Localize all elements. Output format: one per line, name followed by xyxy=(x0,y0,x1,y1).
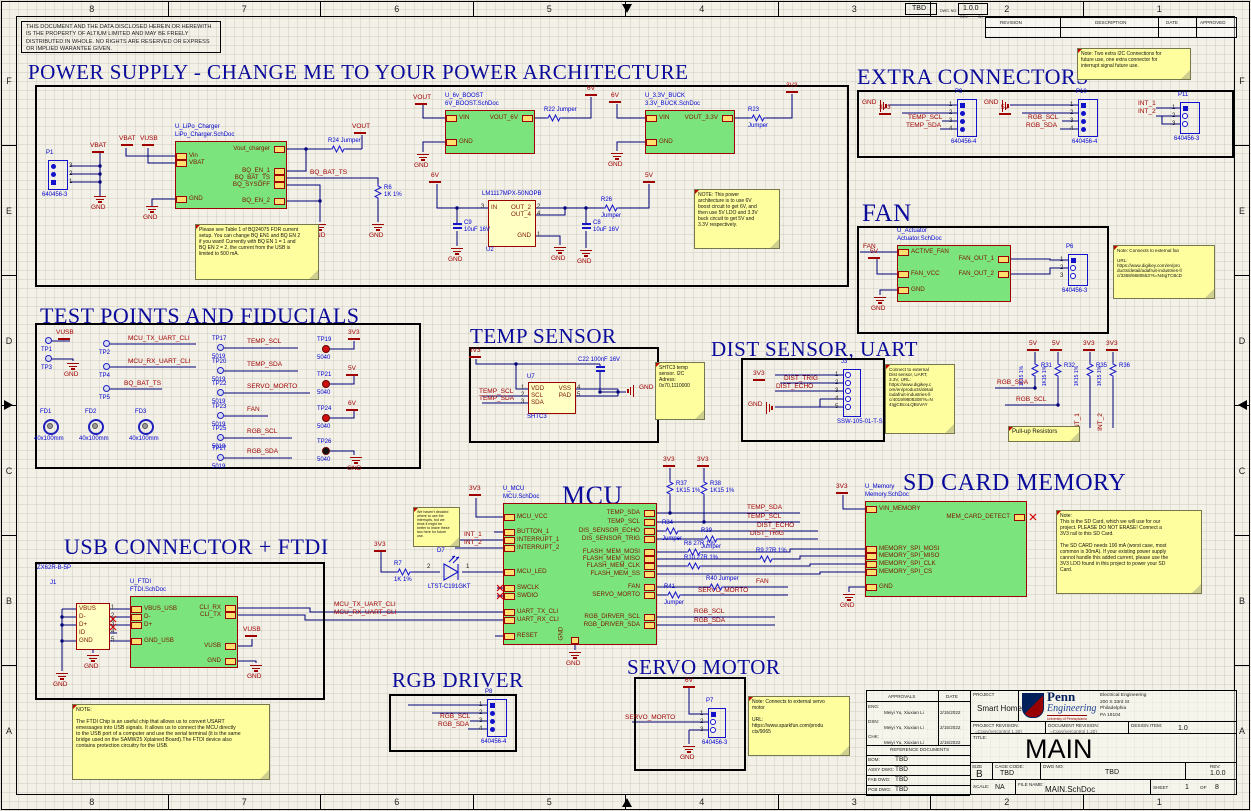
note-sticky[interactable]: NOTE: The FTDI Chip is an useful chip th… xyxy=(72,704,270,780)
gnd-bar xyxy=(451,248,463,249)
gnd-symbol-icon xyxy=(554,247,566,255)
sheet-pin xyxy=(504,609,515,616)
net-label: RGB_SCL xyxy=(1016,397,1046,404)
ref-value: TBD xyxy=(895,756,908,763)
resistor-value: Jumper xyxy=(748,123,768,129)
resistor-R36[interactable] xyxy=(1109,362,1117,378)
net-label: RGB_SCL xyxy=(1028,115,1058,122)
gnd-label: GND xyxy=(871,306,885,313)
connector-pin-number: 4 xyxy=(949,126,952,132)
sheet-number: 1 xyxy=(1185,784,1189,791)
connector-pin-number: 1 xyxy=(835,372,838,378)
note-sticky[interactable]: Note: Connects to external servomotor UR… xyxy=(748,696,850,756)
note-sticky[interactable]: We haven't decidedwhere to use theinterr… xyxy=(413,507,460,547)
gnd-symbol-icon xyxy=(67,363,79,371)
zone-label: 8 xyxy=(16,2,168,16)
sheet-pin xyxy=(446,139,457,146)
section-title: TEMP SENSOR xyxy=(470,324,617,349)
gnd-symbol-icon xyxy=(451,248,463,256)
net-label: TEMP_SCL xyxy=(247,339,281,346)
gnd-bar xyxy=(148,209,156,210)
part-pin-name: PAD xyxy=(531,393,571,400)
gnd-label: GND xyxy=(566,661,580,668)
resistor-label: R39 xyxy=(701,528,712,534)
gnd-bar xyxy=(350,457,362,458)
connector-pin-number: 3 xyxy=(949,118,952,124)
ref-value: TBD xyxy=(895,776,908,783)
resistor-R40[interactable] xyxy=(708,583,724,591)
capacitor-value: 10uF 16V xyxy=(464,227,490,233)
power-rail-bar-icon xyxy=(643,181,655,183)
resistor-R38[interactable] xyxy=(700,480,708,496)
resistor-value: 1K15 1% xyxy=(1020,366,1025,386)
sheet-symbol-filename: 3.3V_BUCK.SchDoc xyxy=(645,101,700,107)
text-label: D7 xyxy=(437,548,445,554)
net-label: RGB_SCL xyxy=(247,429,277,436)
sheet-pin xyxy=(225,605,236,612)
note-line: c/3368/6680553?s=N4IgTCBcD xyxy=(1117,273,1211,278)
gnd-symbol-icon xyxy=(611,153,623,161)
sheet-pin xyxy=(722,115,733,122)
approval-key: ENG: xyxy=(868,704,879,709)
gnd-bar xyxy=(615,158,619,159)
power-rail-bar-icon xyxy=(753,379,765,381)
note-line: cts/9065 xyxy=(752,729,846,735)
sheet-pin-label: FLASH_MEM_CLK xyxy=(560,563,640,570)
power-rail-bar-icon xyxy=(879,113,891,115)
net-label: MCU_TX_UART_CLI xyxy=(128,336,190,343)
note-sticky[interactable]: NOTE: This powerarchitecture is to use 6… xyxy=(694,189,780,249)
fiducial-label: FD1 xyxy=(40,409,51,415)
sheet-pin-label: RESET xyxy=(517,633,538,640)
gnd-bar xyxy=(874,297,886,298)
sheet-pin xyxy=(998,271,1009,278)
power-rail-bar-icon xyxy=(121,144,133,146)
section-title: SD CARD MEMORY xyxy=(903,470,1126,497)
sheet-pin xyxy=(504,537,515,544)
sheet-pin-label: FAN xyxy=(560,584,640,591)
part-pin-number: 1 xyxy=(111,605,114,611)
resistor-R6[interactable] xyxy=(374,184,382,200)
gnd-symbol-icon xyxy=(146,206,158,214)
resistor-R23[interactable] xyxy=(750,114,766,122)
section-box xyxy=(35,323,421,469)
testpoint-TP19[interactable] xyxy=(322,345,330,353)
gnd-label: GND xyxy=(369,233,383,240)
connector-pin-number: 5 xyxy=(835,404,838,410)
testpoint-TP21[interactable] xyxy=(322,380,330,388)
resistor-label: R37 xyxy=(676,481,687,487)
testpoint-package: 5040 xyxy=(317,355,330,361)
schematic-sheet: 87654321 87654321 FEDCBA FEDCBA THIS DOC… xyxy=(0,0,1251,811)
resistor-R37[interactable] xyxy=(666,480,674,496)
testpoint-package: 5040 xyxy=(317,390,330,396)
scale-value: NA xyxy=(995,784,1005,791)
power-rail-label: 3V3 xyxy=(374,542,386,549)
fiducial-dot xyxy=(47,423,53,429)
note-sticky[interactable]: Note:This is the SD Card, which we will … xyxy=(1056,510,1202,594)
sheet-pin-label: FAN_OUT_2 xyxy=(914,271,994,278)
power-rail-bar-icon xyxy=(999,113,1011,115)
testpoint-TP26[interactable] xyxy=(322,447,330,455)
approval-date: 2/15/2022 xyxy=(940,725,960,730)
dwg-no-label-2: DWG NO: xyxy=(1043,764,1064,769)
sheet-pin xyxy=(998,256,1009,263)
capacitor-label: C22 100nF 16V xyxy=(578,357,620,363)
sheet-pin xyxy=(644,556,655,563)
resistor-label: R40 Jumper xyxy=(706,576,739,582)
zone-label: 2 xyxy=(930,795,1083,809)
connector-pin xyxy=(710,727,716,733)
gnd-bar xyxy=(584,255,588,256)
cage-code-label: CAGE CODE: xyxy=(995,764,1024,769)
sheet-pin xyxy=(898,271,909,278)
gnd-label: GND xyxy=(840,603,854,610)
dwg-no-value-2: TBD xyxy=(1105,769,1119,776)
sheet-total: 8 xyxy=(1215,784,1219,791)
gnd-bar xyxy=(69,366,77,367)
part-pin-number: 3 xyxy=(481,204,484,210)
capacitor-C9[interactable] xyxy=(453,223,462,225)
note-sticky[interactable]: Pull-up Resistors xyxy=(1008,426,1080,442)
org-name-2: Engineering xyxy=(1047,703,1096,714)
text-label: ZX62R-B-5P xyxy=(37,565,71,571)
resistor-value: 1K15 1% xyxy=(1098,366,1103,386)
note-sticky[interactable]: Note: Connects to external fan URL:https… xyxy=(1113,245,1215,299)
connector-pin xyxy=(710,719,716,725)
connector-pin-number: 3 xyxy=(1070,118,1073,124)
connector-designator: P9 xyxy=(955,89,962,95)
document-revision-label: DOCUMENT REVISION: xyxy=(1048,723,1099,728)
connector-designator: P11 xyxy=(1178,92,1188,98)
resistor-R9[interactable] xyxy=(758,555,774,563)
power-rail-bar-icon xyxy=(1027,349,1039,351)
sheet-pin xyxy=(866,553,877,560)
sheet-symbol-designator: U_LiPo_Charger xyxy=(175,124,220,130)
power-rail-bar-icon xyxy=(1106,349,1118,351)
connector-pin xyxy=(845,372,851,378)
testpoint-TP22[interactable] xyxy=(217,389,224,396)
capacitor-label: C9 xyxy=(464,220,472,226)
sheet-pin-label: DIS_SENSOR_TRIG xyxy=(560,536,640,543)
gnd-bar xyxy=(419,157,427,158)
connector-part-number: 640456-4 xyxy=(1072,139,1097,145)
testpoint-TP5[interactable] xyxy=(103,385,110,392)
sheet-pin-label: MCU_LED xyxy=(517,569,547,576)
power-rail-label: 3V3 xyxy=(786,83,798,90)
connector-pin-number: 2 xyxy=(1070,110,1073,116)
sheet-pin-label: VOUT_3.3V xyxy=(638,115,718,122)
sheet-pin-label: Vout_charger xyxy=(190,146,270,153)
sheet-pin-label: MEMORY_SPI_CLK xyxy=(879,561,936,568)
gnd-symbol-icon xyxy=(372,224,384,232)
gnd-bar xyxy=(252,668,260,669)
power-rail-bar-icon xyxy=(346,374,358,376)
connector-pin-number: 4 xyxy=(835,396,838,402)
gnd-label: GND xyxy=(347,466,361,473)
power-rail-label: 5V xyxy=(1029,341,1037,348)
resistor-R24[interactable] xyxy=(330,145,346,153)
testpoint-label: TP4 xyxy=(99,373,110,379)
ref-value: TBD xyxy=(895,786,908,793)
power-rail-bar-icon xyxy=(469,356,481,358)
power-rail-label: 3V3 xyxy=(348,330,360,337)
connector-pin xyxy=(960,103,965,108)
resistor-R22[interactable] xyxy=(546,114,562,122)
connector-pin xyxy=(1182,113,1188,119)
gnd-bar xyxy=(421,159,425,160)
power-rail-bar-icon xyxy=(58,338,70,340)
testpoint-label: TP22 xyxy=(212,381,226,387)
power-rail-label: 3V3 xyxy=(663,457,675,464)
approvals-label: APPROVALS xyxy=(888,694,916,699)
connector-pin xyxy=(1071,258,1076,263)
net-label: SERVO_MORTO xyxy=(247,384,297,391)
gnd-bar xyxy=(352,460,360,461)
connector-pin-number: 4 xyxy=(479,726,482,732)
text-label: LTST-C191GKT xyxy=(428,584,471,590)
resistor-R7[interactable] xyxy=(396,568,412,576)
zone-label: 7 xyxy=(168,2,321,16)
power-rail-label: 6V xyxy=(611,93,619,100)
gnd-bar xyxy=(254,670,258,671)
resistor-value: 1K15 1% xyxy=(710,488,734,494)
resistor-R41[interactable] xyxy=(666,591,682,599)
resistor-value: Jumper xyxy=(662,536,682,542)
sheet-pin-label: ACTIVE_FAN xyxy=(911,249,949,256)
resistor-value: Jumper xyxy=(664,600,684,606)
part-pin-number: 5 xyxy=(577,392,580,398)
testpoint-package: 5019 xyxy=(212,464,225,470)
rev-label-2: REV: xyxy=(1210,764,1221,769)
sheet-pin xyxy=(898,249,909,256)
resistor-label: R24 Jumper xyxy=(328,138,361,144)
zone-label: 3 xyxy=(778,795,931,809)
sheet-pin xyxy=(131,622,142,629)
part-pin-number: 1 xyxy=(521,385,524,391)
note-sticky[interactable]: Note: Two extra I2C Connections forfutur… xyxy=(1077,48,1191,80)
gnd-bar xyxy=(613,156,621,157)
text-label: LM1117MPX-50NOPB xyxy=(482,191,541,197)
part-pin-name: D+ xyxy=(79,622,87,629)
org-address-line: Philadelphia xyxy=(1100,706,1126,711)
power-rail-bar-icon xyxy=(663,465,675,467)
connector-part-number: 640456-3 xyxy=(1174,136,1199,142)
zone-label: 5 xyxy=(473,2,626,16)
testpoint-TP3[interactable] xyxy=(45,355,52,362)
resistor-R26[interactable] xyxy=(603,204,619,212)
sheet-pin-label: TEMP_SDA xyxy=(560,510,640,517)
net-label: TEMP_SDA xyxy=(906,123,941,130)
zone-label: E xyxy=(1235,145,1249,275)
net-label: INT_2 xyxy=(464,540,482,547)
zone-label: 8 xyxy=(16,795,168,809)
net-label: RGB_SDA xyxy=(247,449,278,456)
note-sticky[interactable]: SHTC3 tempsensor. I2CAdress:0x70,1110000 xyxy=(655,362,705,420)
sheet-pin xyxy=(274,146,285,153)
testpoint-TP17[interactable] xyxy=(217,344,224,351)
testpoint-TP2[interactable] xyxy=(103,340,110,347)
testpoint-TP4[interactable] xyxy=(103,363,110,370)
connector-pin-number: 3 xyxy=(700,727,703,733)
capacitor-C22[interactable] xyxy=(596,366,605,368)
zone-label: A xyxy=(2,665,16,795)
file-name-value: MAIN.SchDoc xyxy=(1045,785,1095,794)
gnd-bar xyxy=(71,368,75,369)
connector-part-number: 640456-4 xyxy=(951,139,976,145)
note-sticky[interactable]: Please see Table 1 of BQ24075 FOR curren… xyxy=(195,224,319,280)
sheet-symbol-filename: FTDI.SchDoc xyxy=(130,587,166,593)
org-address-line: Electrical Engineering xyxy=(1100,693,1146,698)
gnd-symbol-icon xyxy=(843,594,855,602)
note-sticky[interactable]: Connect to externalDist sensor, UART,3.3… xyxy=(885,364,955,434)
part-pin-name: GND xyxy=(79,638,93,645)
capacitor-plate xyxy=(596,370,605,372)
ref-docs-label: REFERENCE DOCUMENTS xyxy=(890,747,949,752)
testpoint-label: TP26 xyxy=(317,439,331,445)
gnd-bar xyxy=(60,678,64,679)
sheet-pin xyxy=(225,643,236,650)
col-description: DESCRIPTION xyxy=(1095,20,1126,25)
testpoint-label: TP5 xyxy=(99,395,110,401)
connector-designator: P6 xyxy=(1066,244,1073,250)
net-label: TEMP_SCL xyxy=(747,514,781,521)
connector-designator: P10 xyxy=(1076,89,1087,95)
connector-pin-number: 2 xyxy=(835,380,838,386)
sheet-pin-label: VIN_MEMORY xyxy=(879,506,921,513)
capacitor-C8[interactable] xyxy=(582,223,591,225)
project-revision-label: PROJECT REVISION: xyxy=(973,723,1019,728)
resistor-label: R22 Jumper xyxy=(544,107,577,113)
power-rail-label: 6V xyxy=(587,86,595,93)
sheet-pin xyxy=(644,519,655,526)
connector-pin xyxy=(490,711,495,716)
resistor-label: R38 xyxy=(710,481,721,487)
net-label: RGB_SDA xyxy=(438,722,469,729)
resistor-label: R26 xyxy=(601,197,612,203)
sheet-pin xyxy=(176,153,187,160)
testpoint-TP24[interactable] xyxy=(322,414,330,422)
power-rail-bar-icon xyxy=(786,91,798,93)
power-rail-bar-icon xyxy=(1083,349,1095,351)
gnd-label: GND xyxy=(639,385,653,392)
gnd-bar xyxy=(573,657,577,658)
connector-part-number: 640456-3 xyxy=(42,192,67,198)
resistor-R32[interactable] xyxy=(1054,362,1062,378)
connector-pin xyxy=(490,727,495,732)
gnd-bar xyxy=(87,655,99,656)
gnd-label: GND xyxy=(91,205,105,212)
power-rail-bar-icon xyxy=(348,338,360,340)
sheet-pin xyxy=(504,593,515,600)
approval-name: Meiyi Yu, Xiuxian Li xyxy=(884,740,924,745)
sheet-pin-label: SWCLK xyxy=(517,585,539,592)
resistor-R34[interactable] xyxy=(664,527,680,535)
sheet-pin-label: MCU_VCC xyxy=(517,514,548,521)
power-rail-label: VBAT xyxy=(119,136,136,143)
gnd-bar xyxy=(771,406,772,410)
sheet-pin xyxy=(274,168,285,175)
org-name: Penn xyxy=(1047,691,1075,703)
note-line: 4IgjCBcoLQBxVAY xyxy=(889,402,951,407)
capacitor-plate xyxy=(453,227,462,229)
gnd-bar xyxy=(89,658,97,659)
gnd-symbol-icon xyxy=(880,100,888,112)
gnd-label: GND xyxy=(143,215,157,222)
connector-pin xyxy=(51,180,56,185)
connector-pin-number: 4 xyxy=(1070,126,1073,132)
gnd-bar xyxy=(1005,102,1006,110)
net-label: TEMP_SDA xyxy=(247,362,282,369)
fiducial-size: 40x100mm xyxy=(129,436,159,442)
testpoint-TP23[interactable] xyxy=(217,412,224,419)
sheet-pin-label: TEMP_SCL xyxy=(560,519,640,526)
net-label: MCU_TX_UART_CLI xyxy=(334,602,396,609)
gnd-bar xyxy=(845,597,853,598)
note-line: contains protection circuitry for the US… xyxy=(76,743,266,749)
net-label: RGB_SDA xyxy=(1026,123,1057,130)
gnd-bar xyxy=(146,206,158,207)
connector-designator: P7 xyxy=(706,698,713,704)
zone-label: C xyxy=(1235,405,1249,535)
zone-label: 6 xyxy=(320,795,473,809)
testpoint-TP1[interactable] xyxy=(45,337,52,344)
resistor-R10[interactable] xyxy=(686,562,702,570)
fiducial-dot xyxy=(92,423,98,429)
approval-date: 2/15/2022 xyxy=(940,740,960,745)
connector-pin xyxy=(845,396,851,402)
approval-key: DSN: xyxy=(868,719,879,724)
gnd-bar xyxy=(582,253,590,254)
gnd-symbol-icon xyxy=(569,652,581,660)
zone-label: F xyxy=(1235,16,1249,145)
power-rail-label: 3V3 xyxy=(836,484,848,491)
gnd-bar xyxy=(878,302,882,303)
file-name-label: FILE NAME: xyxy=(1018,782,1044,787)
net-label: INT_2 xyxy=(1098,413,1105,431)
testpoint-package: 5040 xyxy=(317,457,330,463)
part-pin-name: VBUS xyxy=(79,606,96,613)
part-pin-name: GND xyxy=(491,233,531,240)
resistor-label: R7 xyxy=(394,561,402,567)
ref-key: BOM: xyxy=(868,757,880,762)
sheet-pin-label: SERVO_MORTO xyxy=(560,592,640,599)
connector-pin xyxy=(1081,119,1086,124)
net-label: SERVO_MORTO xyxy=(625,715,675,722)
testpoint-TP27[interactable] xyxy=(217,454,224,461)
sheet-pin-label: BUTTON_1 xyxy=(517,529,549,536)
disclaimer-box: THIS DOCUMENT AND THE DATA DISCLOSED HER… xyxy=(21,21,221,53)
connector-pin-number: 1 xyxy=(69,179,72,185)
sheet-pin xyxy=(866,561,877,568)
sheet-pin xyxy=(504,585,515,592)
sheet-pin-label: GND xyxy=(879,584,893,591)
sheet-pin xyxy=(504,569,515,576)
sheet-symbol-designator: U_3.3V_BUCK xyxy=(645,93,685,99)
gnd-label: GND xyxy=(64,372,78,379)
note-line: 0x70,1110000 xyxy=(659,383,701,389)
gnd-bar xyxy=(769,404,770,412)
testpoint-TP25[interactable] xyxy=(217,434,224,441)
sheet-pin-label: D+ xyxy=(144,622,152,629)
ref-key: ASSY DWG: xyxy=(868,767,894,772)
net-label: INT_1 xyxy=(464,532,482,539)
resistor-R35[interactable] xyxy=(1086,362,1094,378)
resistor-R31[interactable] xyxy=(1031,362,1039,378)
gnd-bar xyxy=(354,462,358,463)
power-rail-label: 5V xyxy=(1052,341,1060,348)
testpoint-TP20[interactable] xyxy=(217,367,224,374)
